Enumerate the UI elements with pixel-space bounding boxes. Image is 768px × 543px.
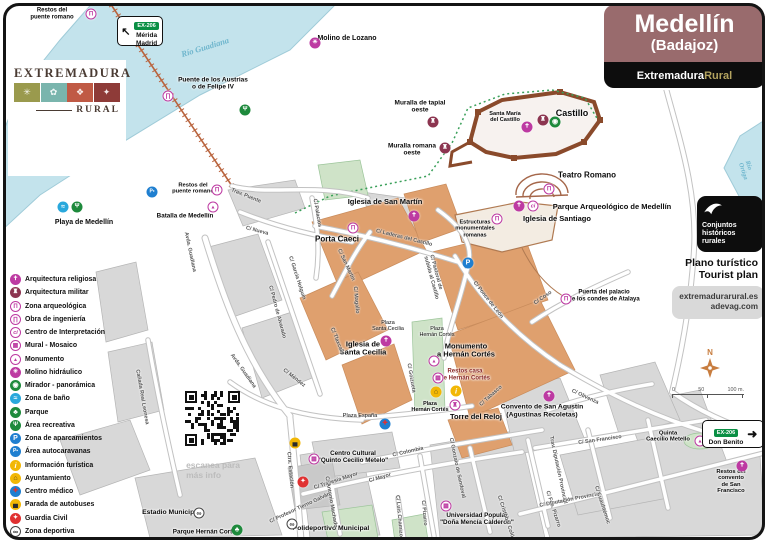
- deportiva-icon: ∞: [194, 508, 205, 519]
- scale-100: 100 m.: [728, 387, 744, 393]
- mural-icon: ▦: [10, 340, 21, 351]
- legend-item: ≈Zona de baño: [10, 392, 105, 405]
- tourist-map: Restos del puente romanoMolino de Lozano…: [0, 0, 768, 543]
- scale-rule: [672, 394, 744, 399]
- legend-item-label: Mirador - panorámica: [25, 382, 95, 389]
- legend-item-label: Monumento: [25, 356, 64, 363]
- legend-item: ∞Zona deportiva: [10, 525, 105, 538]
- brand-rural: Rural: [704, 70, 732, 82]
- info-icon: i: [451, 386, 462, 397]
- north-label: N: [698, 348, 722, 357]
- recreativa-icon: Ψ: [72, 202, 83, 213]
- religiosa-icon: ✝: [409, 211, 420, 222]
- province-name: (Badajoz): [604, 37, 765, 54]
- tile-icon: ✦: [94, 83, 120, 102]
- brand-extremadura: Extremadura: [637, 70, 704, 82]
- qr-caption: escanea para más info: [186, 460, 240, 480]
- tile-icon: ✳: [14, 83, 40, 102]
- legend-item-label: Zona deportiva: [25, 528, 74, 535]
- religiosa-icon: ✝: [381, 336, 392, 347]
- conjuntos-badge: Conjuntos históricos rurales: [697, 196, 763, 252]
- route-badge: EX-206: [714, 429, 738, 437]
- arqueologica-icon: Π: [492, 214, 503, 225]
- scale-bar: 0 50 100 m.: [672, 387, 744, 399]
- arqueologica-icon: Π: [86, 9, 97, 20]
- legend-item: ⌂Ayuntamiento: [10, 472, 105, 485]
- ci-icon: ci: [10, 327, 21, 338]
- parque-icon: ♣: [10, 407, 21, 418]
- medico-icon: ✚: [10, 486, 21, 497]
- legend-item-label: Arquitectura religiosa: [25, 276, 96, 283]
- legend-item: ✝Arquitectura religiosa: [10, 273, 105, 286]
- logo-panel: EXTREMADURA ✳ ✿ ❖ ✦ RURAL: [8, 60, 126, 176]
- bano-icon: ≈: [10, 393, 21, 404]
- legend-item-label: Mural - Mosaico: [25, 342, 77, 349]
- legend-item: P▪Área autocaravanas: [10, 445, 105, 458]
- monumento-icon: ▲: [208, 202, 219, 213]
- legend-item-label: Parque: [25, 409, 48, 416]
- arqueologica-icon: Π: [544, 184, 555, 195]
- parque-icon: ♣: [232, 525, 243, 536]
- mirador-icon: ◉: [10, 380, 21, 391]
- scale-0: 0: [672, 387, 675, 393]
- web-links-box: extremadurarural.es adevag.com: [672, 286, 764, 319]
- legend-item-label: Parada de autobuses: [25, 501, 94, 508]
- legend-item: ▄Parada de autobuses: [10, 498, 105, 511]
- plan-title: Plano turístico Tourist plan: [685, 257, 758, 281]
- compass-rose-icon: [699, 357, 721, 379]
- arqueologica-icon: Π: [348, 223, 359, 234]
- autocaravana-icon: P▪: [147, 187, 158, 198]
- militar-icon: ♜: [428, 117, 439, 128]
- religiosa-icon: ✝: [10, 274, 21, 285]
- sign-merida-madrid: ↖ EX-206 Mérida Madrid: [117, 16, 163, 46]
- legend-item: ΨÁrea recreativa: [10, 419, 105, 432]
- aparcamiento-icon: P: [10, 433, 21, 444]
- sign-destinations: Mérida Madrid: [134, 32, 158, 48]
- map-title: Medellín (Badajoz) ExtremaduraRural: [604, 5, 765, 88]
- legend-item: ✚Centro médico: [10, 485, 105, 498]
- ayuntamiento-icon: ⌂: [431, 387, 442, 398]
- bird-icon: [702, 200, 724, 216]
- mural-icon: ▦: [309, 454, 320, 465]
- legend-item: ΠZona arqueológica: [10, 300, 105, 313]
- web-link-2: adevag.com: [678, 302, 758, 312]
- ci-icon: ci: [528, 201, 539, 212]
- up-left-arrow-icon: ↖: [121, 25, 130, 38]
- rural-wordmark: RURAL: [76, 105, 120, 115]
- conjuntos-label: Conjuntos históricos rurales: [702, 222, 758, 245]
- compass: N: [698, 348, 722, 384]
- legend-item-label: Guardia Civil: [25, 515, 68, 522]
- route-badge: EX-206: [134, 22, 158, 30]
- guardia-icon: ✦: [10, 513, 21, 524]
- legend-item: ✳Molino hidráulico: [10, 366, 105, 379]
- legend-item-label: Obra de ingeniería: [25, 316, 86, 323]
- molino-icon: ✳: [310, 38, 321, 49]
- bus-icon: ▄: [290, 438, 301, 449]
- legend-item-label: Centro de Interpretación: [25, 329, 105, 336]
- legend-item-label: Información turística: [25, 462, 93, 469]
- arqueologica-icon: Π: [10, 301, 21, 312]
- religiosa-icon: ✝: [737, 461, 748, 472]
- militar-icon: ♜: [10, 287, 21, 298]
- town-name: Medellín: [604, 11, 765, 37]
- legend-item: ▲Monumento: [10, 353, 105, 366]
- autocaravana-icon: P▪: [10, 446, 21, 457]
- rural-rule: [36, 110, 72, 111]
- legend-item-label: Zona de aparcamientos: [25, 435, 102, 442]
- title-top: Medellín (Badajoz): [604, 5, 765, 62]
- legend-item: ✦Guardia Civil: [10, 512, 105, 525]
- sign-destinations: Don Benito: [709, 439, 744, 447]
- torre-icon: ♜: [450, 400, 461, 411]
- legend-item: ∏Obra de ingeniería: [10, 313, 105, 326]
- molino-icon: ✳: [10, 367, 21, 378]
- sign-don-benito: EX-206 Don Benito ➜: [702, 420, 764, 448]
- recreativa-icon: Ψ: [10, 420, 21, 431]
- legend-item: ♜Arquitectura militar: [10, 286, 105, 299]
- brand-bar: ExtremaduraRural: [604, 62, 765, 88]
- legend-item-label: Molino hidráulico: [25, 369, 82, 376]
- info-icon: i: [10, 460, 21, 471]
- militar-icon: ♜: [538, 115, 549, 126]
- arqueologica-icon: Π: [212, 185, 223, 196]
- legend-item-label: Zona arqueológica: [25, 303, 86, 310]
- legend-item: ▦Mural - Mosaico: [10, 339, 105, 352]
- religiosa-icon: ✝: [514, 201, 525, 212]
- guardia-icon: ✦: [298, 477, 309, 488]
- ayuntamiento-icon: ⌂: [10, 473, 21, 484]
- legend-item: ◉Mirador - panorámica: [10, 379, 105, 392]
- militar-icon: ♜: [440, 143, 451, 154]
- legend-item-label: Área autocaravanas: [25, 448, 91, 455]
- legend-item-label: Ayuntamiento: [25, 475, 71, 482]
- right-arrow-icon: ➜: [747, 427, 757, 441]
- arqueologica-icon: Π: [561, 294, 572, 305]
- tile-icon: ❖: [67, 83, 93, 102]
- legend-item: iInformación turística: [10, 459, 105, 472]
- legend-item-label: Área recreativa: [25, 422, 75, 429]
- legend: ✝Arquitectura religiosa♜Arquitectura mil…: [10, 273, 105, 538]
- mural-icon: ▦: [441, 501, 452, 512]
- mirador-icon: ◉: [550, 117, 561, 128]
- monumento-icon: ▲: [10, 354, 21, 365]
- deportiva-icon: ∞: [287, 519, 298, 530]
- scale-50: 50: [698, 387, 704, 393]
- deportiva-icon: ∞: [10, 526, 21, 537]
- extremadura-tiles: ✳ ✿ ❖ ✦: [14, 83, 126, 102]
- religiosa-icon: ✝: [544, 391, 555, 402]
- legend-item-label: Arquitectura militar: [25, 289, 89, 296]
- mural-icon: ▦: [433, 373, 444, 384]
- qr-finder-icon: [185, 434, 197, 446]
- legend-item: ♣Parque: [10, 406, 105, 419]
- monumento-icon: ▲: [429, 356, 440, 367]
- qr-code: [185, 391, 240, 446]
- qr-finder-icon: [185, 391, 197, 403]
- ingenieria-icon: ∏: [10, 314, 21, 325]
- recreativa-icon: Ψ: [240, 105, 251, 116]
- aparcamiento-icon: P: [463, 258, 474, 269]
- extremadura-logo: EXTREMADURA: [14, 66, 126, 81]
- qr-finder-icon: [228, 391, 240, 403]
- tile-icon: ✿: [41, 83, 67, 102]
- web-link-1: extremadurarural.es: [678, 292, 758, 302]
- legend-item-label: Centro médico: [25, 488, 73, 495]
- ingenieria-icon: ∏: [163, 91, 174, 102]
- bus-icon: ▄: [10, 499, 21, 510]
- bano-icon: ≈: [58, 202, 69, 213]
- legend-item: PZona de aparcamientos: [10, 432, 105, 445]
- religiosa-icon: ✝: [522, 122, 533, 133]
- legend-item: ciCentro de Interpretación: [10, 326, 105, 339]
- legend-item-label: Zona de baño: [25, 395, 70, 402]
- medico-icon: ✚: [380, 419, 391, 430]
